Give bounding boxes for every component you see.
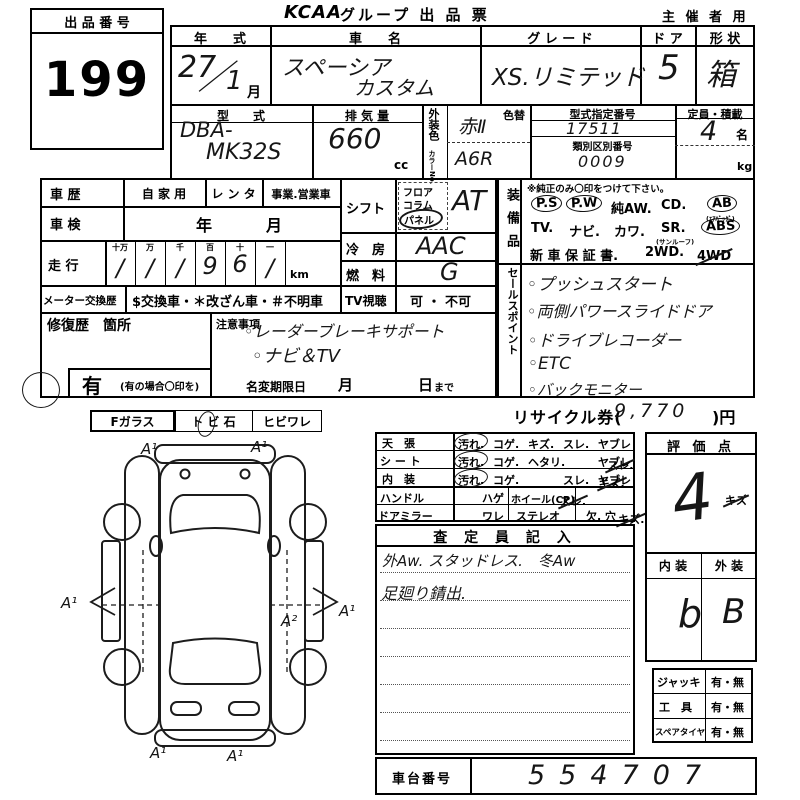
exterior-grade-value: B <box>722 592 745 632</box>
glass-stone-label: ト ビ 石 <box>175 413 252 430</box>
displacement-value: 660 <box>328 122 381 155</box>
cond-mirror-label: ドアミラー <box>378 508 433 524</box>
ac-value: AAC <box>416 232 466 260</box>
ac-label: 冷 房 <box>346 239 385 258</box>
class-no-label: 類別区別番号 <box>530 138 675 153</box>
equip-kawa: カワ. <box>614 221 645 240</box>
color-no-value: A6R <box>455 148 493 170</box>
equipment-label: 装備品 <box>502 188 521 268</box>
mileage-unit: km <box>290 268 309 281</box>
equip-warranty: 新 車 保 証 書. <box>530 245 618 264</box>
class-no-value: 0009 <box>578 152 627 171</box>
tail-light-right <box>229 702 259 715</box>
capacity-value: 4 <box>700 116 717 147</box>
interior-grade-label: 内 装 <box>645 557 701 574</box>
auction-sheet: 出 品 番 号 199 KCAA グループ 出 品 票 主 催 者 用 年 式 … <box>0 0 800 800</box>
note-item-1: ◦レーダーブレーキサポート <box>244 318 444 342</box>
recycle-label-prefix: リサイクル券( <box>513 404 623 428</box>
car-body <box>160 460 270 740</box>
wheel-rear-right <box>290 649 326 685</box>
cond-roof-label: 天 張 <box>382 435 415 451</box>
cond-roof-opt-3: スレ. <box>563 436 589 452</box>
cond-seat-opt-1: コゲ. <box>493 454 519 470</box>
right-rocker-strip <box>305 541 323 641</box>
sales-points-label: セールスポイント <box>504 267 520 395</box>
equip-sr: SR. <box>661 221 686 236</box>
year-label: 年 式 <box>170 28 270 47</box>
sheet-title: グループ 出 品 票 <box>340 4 490 25</box>
cond-stereo-value: 欠. 穴 <box>586 508 616 524</box>
damage-mark-top-left: A¹ <box>140 440 157 458</box>
shift-column-option: コラム <box>403 197 433 212</box>
sales-point-4: ◦ETC <box>528 354 571 374</box>
damage-mark-left: A¹ <box>60 594 77 612</box>
inspection-month-unit: 月 <box>266 212 282 236</box>
mileage-col-1: 一 <box>255 242 285 253</box>
right-side-panel <box>271 456 305 734</box>
cond-seat-label: シ ー ト <box>380 453 421 469</box>
cond-seat-opt-4: ヤブレ <box>598 454 631 470</box>
color-no-label: カラーNo. <box>427 150 437 178</box>
spare-tire-label: スペアタイヤ <box>655 726 705 738</box>
cond-stereo-label: ステレオ <box>516 508 560 524</box>
mileage-digit-3: 9 <box>195 252 225 280</box>
note-item-2: ◦ナビ＆TV <box>252 342 340 368</box>
shift-label: シフト <box>346 198 385 217</box>
equip-pw: P.W <box>566 194 603 212</box>
shift-value: AT <box>452 184 486 217</box>
mileage-col-100k: 十万 <box>105 242 135 253</box>
mileage-digit-1: / <box>135 254 165 282</box>
brand-logo: KCAA <box>284 2 342 23</box>
wheel-front-right <box>290 504 326 540</box>
grade-value: XS.リミテッド <box>492 58 645 92</box>
grade-label: グ レ ー ド <box>480 28 640 47</box>
tools-label: 工 具 <box>659 699 692 715</box>
mileage-digit-0: / <box>105 254 135 282</box>
cond-roof-opt-0: 汚れ. <box>458 436 484 452</box>
equip-tv: TV. <box>531 221 553 236</box>
color-value: 赤Ⅱ <box>458 112 486 139</box>
recycle-value: 9,770 <box>614 400 688 422</box>
shift-panel-option: パネル <box>404 212 434 227</box>
damage-mark-bottom-left: A¹ <box>149 744 166 762</box>
tv-label: TV視聴 <box>345 292 386 309</box>
damage-mark-inner-right: A² <box>280 612 297 630</box>
color-change-label: 色替 <box>503 107 525 123</box>
recycle-label-suffix: )円 <box>712 404 735 428</box>
wiper-pivot-right <box>241 470 250 479</box>
equip-cd: CD. <box>661 198 686 213</box>
door-label: ド ア <box>640 28 695 47</box>
car-damage-diagram: A¹ A¹ A¹ A¹ A² A¹ A¹ <box>55 438 370 763</box>
exterior-grade-label: 外 装 <box>701 557 757 574</box>
equipment-note: ※純正のみ〇印をつけて下さい。 <box>527 181 669 195</box>
f-glass-label: Fガラス <box>90 413 175 430</box>
chassis-label: 車台番号 <box>392 768 452 787</box>
mileage-digit-2: / <box>165 254 195 282</box>
history-private: 自 家 用 <box>123 185 205 202</box>
repair-has-note: (有の場合〇印を) <box>120 378 199 393</box>
equip-abs: ABS <box>701 217 741 235</box>
displacement-unit: cc <box>394 158 408 172</box>
cond-roof-opt-2: キズ. <box>528 436 554 452</box>
damage-mark-bottom-right: A¹ <box>226 747 243 763</box>
cond-interior-opt-0: 汚れ. <box>458 472 484 488</box>
left-side-panel <box>125 456 159 734</box>
cond-seat-opt-0: 汚れ. <box>458 454 484 470</box>
assessor-line-1: 外Aw. スタッドレス. 冬Aw <box>382 550 575 571</box>
lot-number-label: 出 品 番 号 <box>32 12 162 31</box>
mileage-col-10k: 万 <box>135 242 165 253</box>
history-label: 車 歴 <box>50 184 81 203</box>
tail-light-left <box>171 702 201 715</box>
repair-history-label: 修復歴 箇所 <box>47 315 131 335</box>
year-month-value: 1 <box>226 66 243 96</box>
chassis-value: 554707 <box>528 760 715 791</box>
mileage-col-1k: 千 <box>165 242 195 253</box>
cond-roof-opt-4: ヤブレ <box>598 436 631 452</box>
shape-label: 形 状 <box>695 28 755 47</box>
tools-value: 有・無 <box>711 699 744 715</box>
cond-wheel-label: ホイール(CP) <box>511 491 575 506</box>
sales-point-2: ◦両側パワースライドドア <box>527 298 712 322</box>
fuel-value: G <box>440 258 459 286</box>
meter-history-label: メーター交換歴 <box>43 293 117 308</box>
cond-mirror-opt2: ワレ <box>482 508 504 524</box>
cond-roof-opt-1: コゲ. <box>493 436 519 452</box>
spare-tire-value: 有・無 <box>711 724 744 740</box>
fuel-label: 燃 料 <box>346 265 385 284</box>
inspection-year-unit: 年 <box>196 212 212 236</box>
damage-mark-right: A¹ <box>338 602 355 620</box>
interior-grade-value: b <box>678 592 702 636</box>
equip-2wd: 2WD. <box>645 245 684 260</box>
door-value: 5 <box>658 48 680 88</box>
assessor-header: 査 定 員 記 入 <box>375 527 635 547</box>
car-name-value-2: カスタム <box>354 72 434 101</box>
month-unit: 月 <box>247 82 261 102</box>
meter-codes: $交換車・＊改ざん車・＃不明車 <box>132 291 323 310</box>
right-arrow <box>313 588 337 615</box>
equip-aw: 純AW. <box>611 198 652 217</box>
cond-interior-label: 内 装 <box>382 471 415 487</box>
rear-window <box>170 639 260 685</box>
cond-seat-opt-2: ヘタリ. <box>528 454 565 470</box>
cond-interior-opt-1: コゲ. <box>493 472 519 488</box>
jack-label: ジャッキ <box>657 674 700 690</box>
wheel-rear-left <box>104 649 140 685</box>
cond-handle-opt2: ハゲ <box>482 490 504 506</box>
history-commercial: 事業.営業車 <box>262 186 340 202</box>
weight-unit: kg <box>737 160 752 173</box>
equip-navi: ナビ. <box>569 221 600 240</box>
transfer-deadline-label: 名変期限日 <box>246 378 306 395</box>
mileage-digit-4: 6 <box>225 250 255 278</box>
mileage-digit-5: / <box>255 254 285 282</box>
name-label: 車 名 <box>270 28 480 47</box>
deadline-until: まで <box>434 379 454 394</box>
cond-handle-label: ハンドル <box>380 490 424 506</box>
glass-crack-label: ヒビワレ <box>252 413 322 430</box>
damage-mark-top-right: A¹ <box>250 438 267 456</box>
jack-value: 有・無 <box>711 674 744 690</box>
deadline-month-unit: 月 <box>338 374 353 395</box>
cond-interior-opt-3: スレ. <box>563 472 589 488</box>
wiper-pivot-left <box>181 470 190 479</box>
inspection-label: 車 検 <box>50 214 81 233</box>
repair-has-label: 有 <box>82 370 102 399</box>
capacity-unit: 名 <box>736 126 748 143</box>
wheel-front-left <box>104 504 140 540</box>
windshield <box>170 495 260 533</box>
model-value-1: DBA- <box>180 118 233 142</box>
type-no-value: 17511 <box>566 119 622 138</box>
model-value-2: MK32S <box>206 140 281 165</box>
sales-point-3: ◦ドライブレコーダー <box>528 327 681 351</box>
sales-point-1: ◦プッシュスタート <box>527 270 673 295</box>
shape-value: 箱 <box>706 50 736 94</box>
equip-4wd: 4WD <box>697 249 731 264</box>
tv-options: 可 ・ 不可 <box>410 291 471 310</box>
cond-interior-opt-4: ヤブレ <box>598 472 631 488</box>
sales-point-5: ◦バックモニター <box>528 379 642 400</box>
audience-label: 主 催 者 用 <box>662 6 749 25</box>
history-rental: レ ン タ <box>205 185 262 202</box>
lot-number-value: 199 <box>32 52 162 108</box>
ext-color-label: 外装色 <box>425 108 441 150</box>
mileage-label: 走 行 <box>48 255 79 274</box>
deadline-day-unit: 日 <box>418 374 433 395</box>
